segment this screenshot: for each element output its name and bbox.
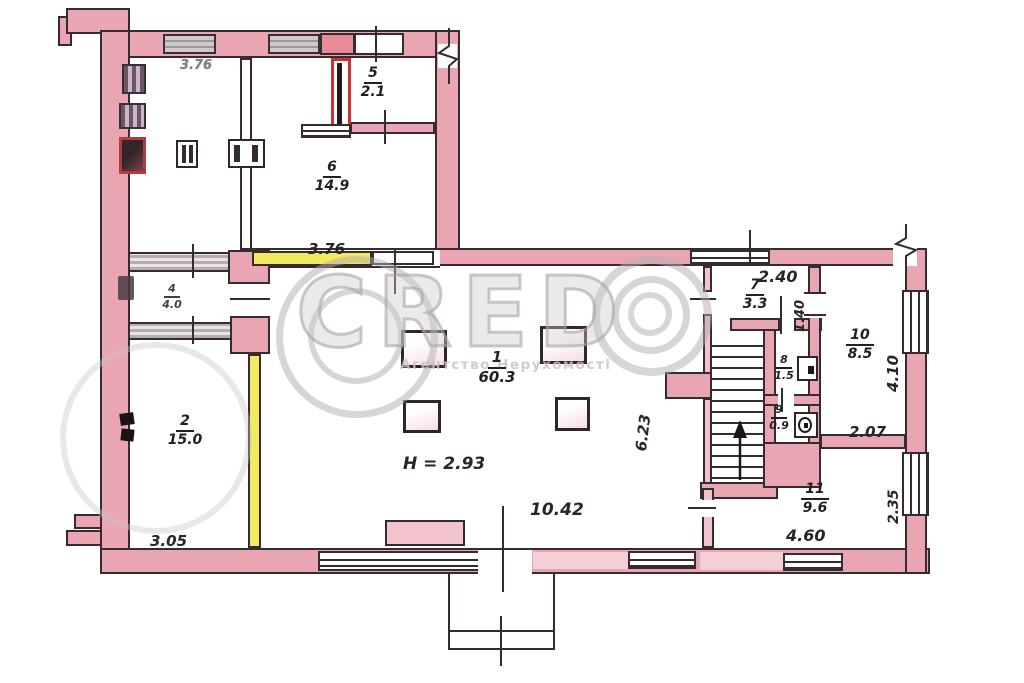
wall-top-main (435, 248, 905, 266)
fixture-mark (182, 145, 186, 163)
room-number: 5 (364, 66, 382, 84)
wall-segment (320, 33, 355, 55)
room-label-6: 6 14.9 (312, 160, 352, 193)
wall-partition-glazed (128, 322, 234, 340)
room-area: 9.6 (797, 500, 833, 516)
window (628, 551, 696, 569)
dimension-label: 3.76 (308, 240, 345, 258)
toilet-dot (804, 423, 808, 428)
ceiling-height-note: H = 2.93 (403, 454, 485, 474)
dimension-label: 3.05 (150, 532, 187, 550)
watermark-copyright-ring (612, 276, 690, 354)
toilet-icon (794, 412, 818, 438)
room-number: 11 (801, 482, 828, 500)
room-area: 4.0 (156, 298, 188, 311)
room-number: 1 (488, 350, 506, 369)
dimension-label: 2.40 (758, 267, 797, 286)
window-opening (372, 251, 434, 265)
room-label-2: 2 15.0 (166, 414, 204, 447)
toilet-bowl (798, 417, 812, 433)
wall (703, 398, 712, 488)
room-area: 60.3 (474, 369, 520, 386)
window (268, 34, 320, 54)
column (540, 326, 587, 364)
window-opening (354, 33, 404, 55)
wall (703, 314, 712, 374)
wall-pier (230, 316, 270, 354)
wall-partition-yellow (248, 354, 261, 548)
column (403, 400, 441, 433)
dimension-label: 2.07 (849, 423, 886, 441)
wall-pier (665, 372, 712, 399)
wall-shading (700, 552, 783, 570)
room-number: 2 (176, 414, 194, 432)
fixture-icon (228, 139, 265, 168)
fixture-icon (118, 276, 134, 300)
room-number: 4 (164, 283, 180, 298)
room-label-5: 5 2.1 (355, 66, 391, 99)
dimension-label: 2.35 (886, 489, 902, 524)
door-tick (688, 507, 716, 509)
room-area: 14.9 (312, 178, 352, 194)
room-label-1: 1 60.3 (474, 350, 520, 386)
dimension-tick (375, 26, 377, 62)
room-number: 9 (771, 404, 787, 419)
window (902, 452, 929, 516)
fixture-icon (120, 428, 134, 441)
fixture-icon (176, 140, 198, 168)
window-sill (301, 124, 351, 138)
window (902, 290, 929, 354)
room-area: 0.9 (765, 419, 793, 432)
wall-pilaster (66, 530, 102, 546)
room-area: 2.1 (355, 84, 391, 100)
window (163, 34, 216, 54)
sink-icon (797, 356, 818, 381)
door-tick (780, 296, 782, 334)
dimension-tick (749, 230, 751, 264)
floor-plan: CRED Агентство Нерухомості (0, 0, 1024, 683)
radiator-icon (119, 103, 146, 129)
stair-direction-arrow (726, 418, 754, 484)
column (401, 330, 447, 368)
watermark-ring (308, 288, 404, 384)
room-area: 15.0 (166, 432, 204, 448)
room-label-9: 9 0.9 (765, 404, 793, 431)
room-number: 6 (323, 160, 341, 178)
dimension-tick (500, 616, 502, 666)
wall-partition (702, 488, 714, 548)
dimension-label: 10.42 (530, 500, 584, 520)
door-tick (690, 298, 716, 300)
dimension-label: 4.10 (884, 355, 902, 392)
door-tick (502, 506, 504, 592)
wall-partition-glazed (128, 252, 242, 272)
fixture-mark (189, 145, 193, 163)
room-label-11: 11 9.6 (797, 482, 833, 515)
window (783, 553, 843, 571)
wall-pilaster (74, 514, 102, 529)
dimension-label: 1.40 (793, 300, 808, 332)
flue-duct (331, 58, 351, 134)
room-number: 10 (846, 328, 873, 346)
radiator-icon (122, 64, 146, 94)
flue-shading (337, 63, 342, 127)
door-tick (230, 298, 270, 300)
break-symbol (436, 28, 462, 84)
column (555, 397, 590, 431)
room-number: 8 (776, 354, 792, 369)
door-tick (804, 292, 826, 294)
room-area: 3.3 (738, 296, 772, 312)
wall-shading (533, 552, 628, 569)
room-label-10: 10 8.5 (842, 328, 878, 361)
dimension-tick (192, 316, 194, 344)
dimension-label: 6.23 (632, 413, 654, 452)
wall (703, 266, 712, 292)
dimension-label: 3.76 (180, 58, 212, 73)
dimension-tick (394, 250, 396, 294)
window (318, 551, 498, 571)
watermark-ring (60, 342, 252, 534)
stove-icon (119, 137, 146, 174)
room-label-4: 4 4.0 (156, 283, 188, 310)
room-area: 8.5 (842, 346, 878, 362)
tap-mark (808, 366, 814, 374)
wall-partition (730, 318, 780, 331)
fixture-mark (234, 145, 240, 162)
fixture-mark (252, 145, 258, 162)
fixture-icon (119, 412, 135, 426)
watermark-copyright-ring (628, 292, 672, 336)
entrance-step (385, 520, 465, 546)
room-area: 1.5 (770, 369, 798, 382)
door-opening (780, 318, 794, 331)
watermark-copyright-ring (592, 256, 712, 376)
dimension-tick (192, 244, 194, 278)
room-label-8: 8 1.5 (770, 354, 798, 381)
door-opening (478, 550, 532, 574)
wall-partition (350, 122, 435, 134)
dimension-label: 4.60 (786, 526, 825, 545)
break-symbol (892, 224, 920, 270)
window (690, 250, 770, 264)
dimension-tick (384, 110, 386, 144)
